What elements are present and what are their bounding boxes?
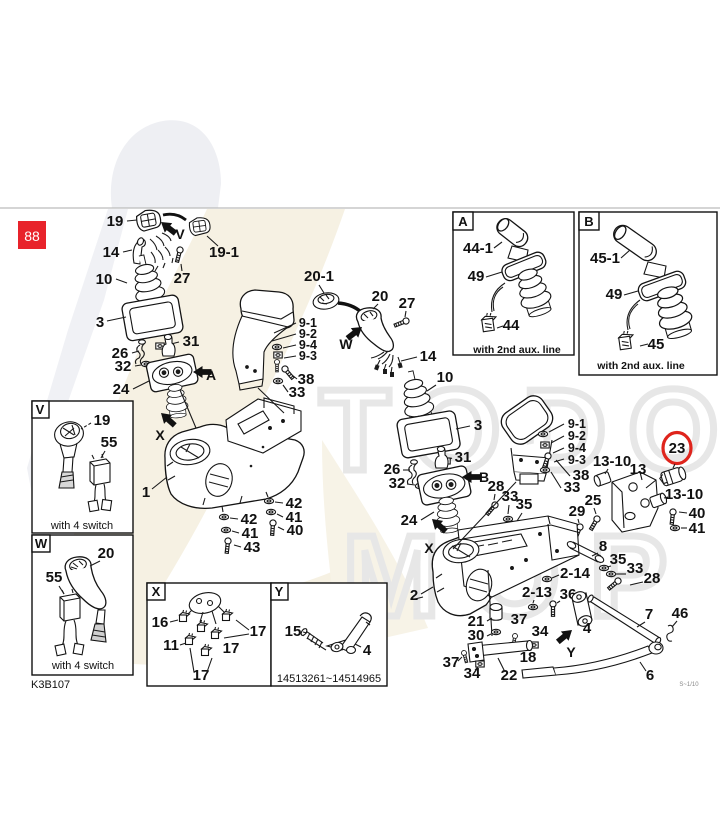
svg-text:10: 10 bbox=[437, 369, 454, 386]
svg-text:49: 49 bbox=[606, 286, 623, 303]
svg-text:4: 4 bbox=[583, 620, 592, 637]
svg-text:33: 33 bbox=[627, 560, 644, 577]
svg-text:B: B bbox=[584, 214, 593, 229]
svg-text:with 4 switch: with 4 switch bbox=[51, 660, 114, 672]
svg-text:X: X bbox=[424, 540, 434, 556]
svg-text:11: 11 bbox=[163, 637, 179, 654]
svg-text:W: W bbox=[35, 536, 48, 551]
svg-text:40: 40 bbox=[287, 522, 304, 539]
svg-text:31: 31 bbox=[183, 333, 200, 350]
svg-text:13: 13 bbox=[630, 461, 647, 478]
svg-text:K3B107: K3B107 bbox=[31, 679, 70, 691]
svg-text:55: 55 bbox=[46, 569, 63, 586]
svg-text:32: 32 bbox=[115, 358, 132, 375]
svg-text:55: 55 bbox=[101, 434, 118, 451]
svg-text:20-1: 20-1 bbox=[304, 268, 334, 285]
svg-text:45-1: 45-1 bbox=[590, 250, 620, 267]
svg-text:24: 24 bbox=[401, 512, 418, 529]
svg-text:43: 43 bbox=[244, 539, 261, 556]
svg-text:A: A bbox=[206, 367, 216, 383]
svg-text:V: V bbox=[175, 226, 185, 242]
svg-text:7: 7 bbox=[645, 606, 653, 623]
svg-text:X: X bbox=[152, 584, 161, 599]
svg-text:19: 19 bbox=[107, 213, 124, 230]
svg-text:8: 8 bbox=[599, 538, 607, 555]
svg-text:19: 19 bbox=[94, 412, 111, 429]
svg-text:2-13: 2-13 bbox=[522, 584, 552, 601]
svg-text:9-3: 9-3 bbox=[299, 349, 317, 363]
svg-text:25: 25 bbox=[585, 492, 602, 509]
svg-text:with 2nd aux. line: with 2nd aux. line bbox=[472, 344, 561, 356]
svg-text:with 2nd aux. line: with 2nd aux. line bbox=[596, 360, 685, 372]
svg-text:31: 31 bbox=[455, 449, 472, 466]
svg-text:34: 34 bbox=[532, 623, 549, 640]
svg-text:41: 41 bbox=[689, 520, 706, 537]
svg-text:27: 27 bbox=[399, 295, 416, 312]
svg-text:32: 32 bbox=[389, 475, 406, 492]
svg-text:Y: Y bbox=[275, 584, 284, 599]
svg-text:A: A bbox=[458, 214, 468, 229]
svg-text:20: 20 bbox=[98, 545, 115, 562]
svg-text:X: X bbox=[155, 427, 165, 443]
svg-text:33: 33 bbox=[564, 479, 581, 496]
svg-text:16: 16 bbox=[152, 614, 169, 631]
svg-text:17: 17 bbox=[250, 623, 267, 640]
svg-text:Y: Y bbox=[566, 644, 576, 660]
svg-text:14513261~14514965: 14513261~14514965 bbox=[277, 673, 381, 685]
svg-text:37: 37 bbox=[443, 654, 460, 671]
svg-text:23: 23 bbox=[669, 440, 686, 457]
svg-text:28: 28 bbox=[644, 570, 661, 587]
svg-text:13-10: 13-10 bbox=[593, 453, 631, 470]
svg-text:46: 46 bbox=[672, 605, 689, 622]
svg-text:45: 45 bbox=[648, 336, 665, 353]
svg-text:22: 22 bbox=[501, 667, 518, 684]
svg-text:37: 37 bbox=[511, 611, 528, 628]
svg-text:10: 10 bbox=[96, 271, 113, 288]
svg-text:V: V bbox=[36, 402, 45, 417]
svg-text:18: 18 bbox=[520, 649, 537, 666]
svg-text:49: 49 bbox=[468, 268, 485, 285]
svg-text:3: 3 bbox=[474, 417, 482, 434]
svg-text:20: 20 bbox=[372, 288, 389, 305]
svg-text:35: 35 bbox=[610, 551, 627, 568]
svg-text:29: 29 bbox=[569, 503, 586, 520]
svg-text:2: 2 bbox=[410, 587, 418, 604]
svg-text:17: 17 bbox=[223, 640, 240, 657]
svg-text:3: 3 bbox=[96, 314, 104, 331]
svg-text:W: W bbox=[339, 336, 353, 352]
svg-text:14: 14 bbox=[103, 244, 120, 261]
svg-text:33: 33 bbox=[289, 384, 306, 401]
svg-text:19-1: 19-1 bbox=[209, 244, 239, 261]
svg-text:S~1/10: S~1/10 bbox=[679, 682, 699, 688]
svg-text:13-10: 13-10 bbox=[665, 486, 703, 503]
svg-text:35: 35 bbox=[516, 496, 533, 513]
svg-text:44-1: 44-1 bbox=[463, 240, 493, 257]
svg-text:2-14: 2-14 bbox=[560, 565, 591, 582]
svg-text:34: 34 bbox=[464, 665, 481, 682]
svg-text:30: 30 bbox=[468, 627, 485, 644]
svg-text:27: 27 bbox=[174, 270, 191, 287]
svg-text:14: 14 bbox=[420, 348, 437, 365]
svg-text:88: 88 bbox=[24, 228, 40, 244]
svg-text:6: 6 bbox=[646, 667, 654, 684]
svg-text:with 4 switch: with 4 switch bbox=[50, 520, 113, 532]
svg-text:44: 44 bbox=[503, 317, 520, 334]
svg-text:24: 24 bbox=[113, 381, 130, 398]
svg-text:9-3: 9-3 bbox=[568, 453, 586, 467]
svg-text:4: 4 bbox=[363, 642, 372, 659]
svg-text:1: 1 bbox=[142, 484, 150, 501]
svg-text:17: 17 bbox=[193, 667, 210, 684]
svg-text:15: 15 bbox=[285, 623, 302, 640]
